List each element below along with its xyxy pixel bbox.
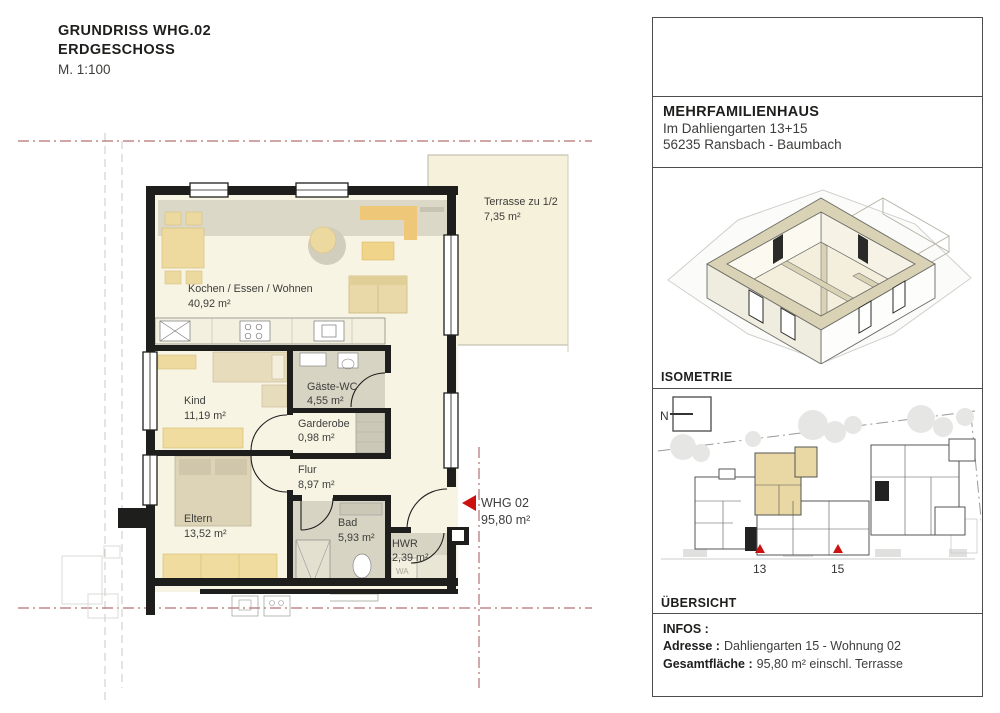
room-gaestewc-name: Gäste-WC xyxy=(307,381,358,393)
north-arrow-icon: N xyxy=(660,397,711,431)
room-bad-area: 5,93 m² xyxy=(338,532,375,544)
isometric-caption: ISOMETRIE xyxy=(653,370,982,388)
isometric-box: ISOMETRIE xyxy=(652,167,983,389)
plan-sheet: GRUNDRISS WHG.02 ERDGESCHOSS M. 1:100 Te… xyxy=(0,0,1000,713)
room-wohnen-area: 40,92 m² xyxy=(188,298,231,310)
house-number-13: 13 xyxy=(753,562,767,576)
infos-area-label: Gesamtfläche : xyxy=(663,657,753,671)
unit-area: 95,80 m² xyxy=(481,513,530,527)
room-flur-name: Flur xyxy=(298,464,317,476)
unit-label: WHG 02 xyxy=(481,496,529,510)
building-title: MEHRFAMILIENHAUS xyxy=(663,104,972,120)
infos-address-value: Dahliengarten 15 - Wohnung 02 xyxy=(724,639,901,653)
washer-label: WA xyxy=(396,567,409,576)
infos-block: INFOS : Adresse :Dahliengarten 15 - Wohn… xyxy=(652,613,983,697)
terrace-name: Terrasse zu 1/2 xyxy=(484,196,558,208)
room-bad-name: Bad xyxy=(338,517,357,529)
room-kind-area: 11,19 m² xyxy=(184,410,226,422)
infos-address-label: Adresse : xyxy=(663,639,720,653)
room-kind-name: Kind xyxy=(184,395,206,407)
infos-area-line: Gesamtfläche :95,80 m² einschl. Terrasse xyxy=(663,656,972,673)
floor-plan-drawing: Terrasse zu 1/2 7,35 m² xyxy=(0,0,640,713)
infos-heading: INFOS : xyxy=(663,622,709,636)
address-block: MEHRFAMILIENHAUS Im Dahliengarten 13+15 … xyxy=(652,96,983,169)
room-garderobe-area: 0,98 m² xyxy=(298,432,335,444)
room-eltern-area: 13,52 m² xyxy=(184,528,227,540)
north-label: N xyxy=(660,409,669,423)
building-street: Im Dahliengarten 13+15 xyxy=(663,121,972,136)
room-garderobe-name: Garderobe xyxy=(298,418,350,430)
house-number-15: 15 xyxy=(831,562,845,576)
isometric-drawing xyxy=(653,168,982,370)
room-hwr-area: 2,39 m² xyxy=(392,552,429,564)
terrace-area: 7,35 m² xyxy=(484,211,521,223)
building-city: 56235 Ransbach - Baumbach xyxy=(663,137,972,152)
site-plan-drawing: N xyxy=(653,389,982,596)
room-gaestewc-area: 4,55 m² xyxy=(307,395,344,407)
site-plan-box: N xyxy=(652,388,983,615)
unit-marker: WHG 02 95,80 m² xyxy=(462,495,530,527)
right-panel: MEHRFAMILIENHAUS Im Dahliengarten 13+15 … xyxy=(652,17,983,697)
infos-address-line: Adresse :Dahliengarten 15 - Wohnung 02 xyxy=(663,638,972,655)
room-wohnen-name: Kochen / Essen / Wohnen xyxy=(188,283,313,295)
infos-area-value: 95,80 m² einschl. Terrasse xyxy=(757,657,903,671)
room-flur-area: 8,97 m² xyxy=(298,479,335,491)
unit-arrow-icon xyxy=(462,495,476,511)
room-eltern-name: Eltern xyxy=(184,513,212,525)
room-hwr-name: HWR xyxy=(392,538,418,550)
title-block-empty xyxy=(652,17,983,97)
site-plan-caption: ÜBERSICHT xyxy=(653,596,982,614)
